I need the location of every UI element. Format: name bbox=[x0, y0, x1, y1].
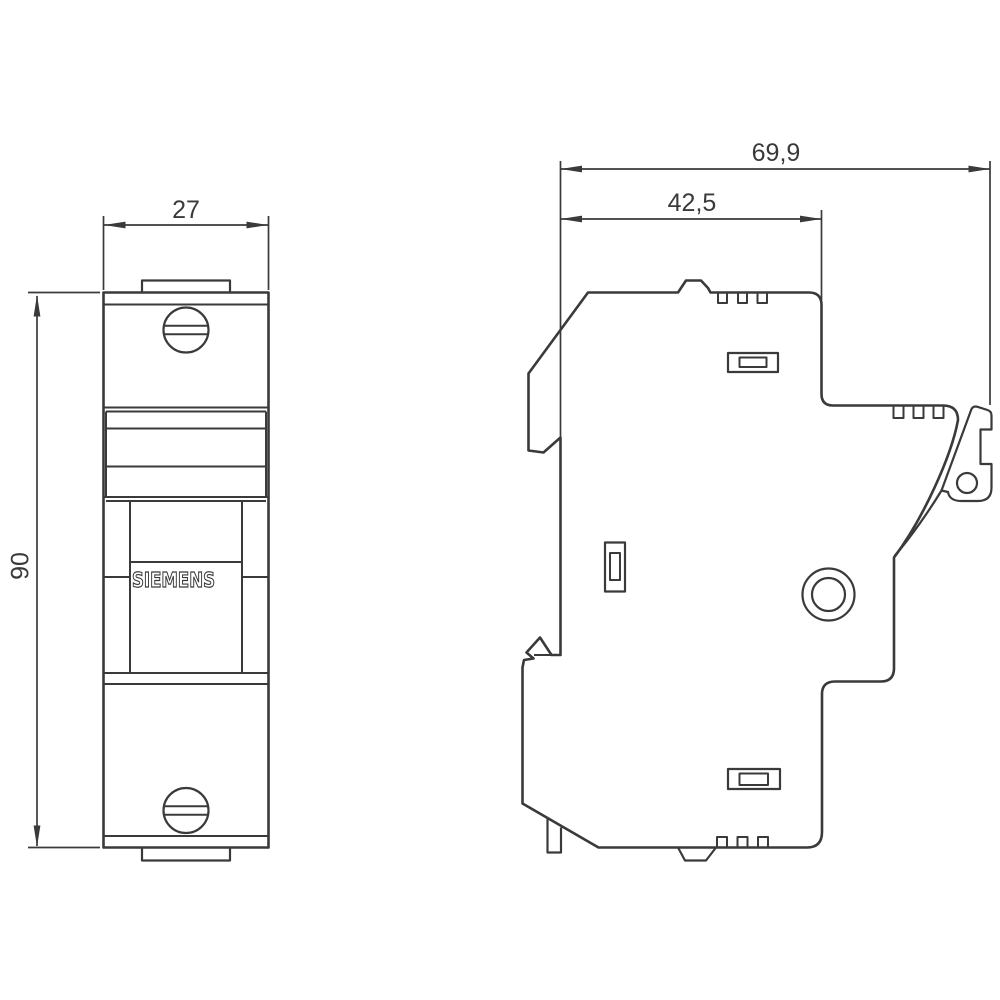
front-bottom-screw bbox=[164, 788, 209, 833]
release-claw-lower-edge bbox=[895, 491, 942, 557]
step-vent-notches bbox=[894, 406, 944, 419]
side-upper-depth-label: 42,5 bbox=[668, 189, 717, 217]
drawing-svg: SIEMENS 27 90 bbox=[0, 0, 1000, 1000]
side-view bbox=[523, 281, 992, 861]
mounting-boss bbox=[803, 569, 855, 621]
side-total-depth-dimension: 69,9 bbox=[561, 139, 991, 437]
brand-logo-text: SIEMENS bbox=[132, 568, 215, 592]
front-view: SIEMENS bbox=[104, 281, 269, 861]
lower-terminal-window bbox=[728, 769, 780, 789]
indicator-slot bbox=[605, 543, 625, 592]
bottom-foot-notch bbox=[678, 848, 716, 861]
arrowhead-left bbox=[104, 222, 126, 229]
arrowhead-right bbox=[247, 222, 269, 229]
side-total-depth-label: 69,9 bbox=[752, 139, 801, 167]
arrowhead-right bbox=[800, 216, 822, 223]
front-width-label: 27 bbox=[172, 196, 200, 224]
front-top-screw bbox=[164, 308, 209, 353]
front-width-dimension: 27 bbox=[104, 196, 269, 290]
latch-hole bbox=[957, 473, 977, 493]
technical-drawing-page: SIEMENS 27 90 bbox=[0, 0, 1000, 1000]
front-top-tab bbox=[142, 281, 230, 293]
arrowhead-bottom bbox=[34, 826, 41, 848]
arrowhead-left bbox=[561, 166, 583, 173]
side-upper-depth-dimension: 42,5 bbox=[561, 189, 822, 300]
top-vent-notches bbox=[718, 293, 767, 304]
front-height-label: 90 bbox=[7, 552, 35, 580]
front-height-dimension: 90 bbox=[7, 293, 101, 848]
arrowhead-top bbox=[34, 295, 41, 317]
arrowhead-right bbox=[969, 166, 991, 173]
upper-terminal-window bbox=[728, 353, 778, 372]
arrowhead-left bbox=[561, 216, 583, 223]
bottom-vent-notches bbox=[717, 837, 768, 848]
front-bottom-tab bbox=[142, 848, 230, 861]
